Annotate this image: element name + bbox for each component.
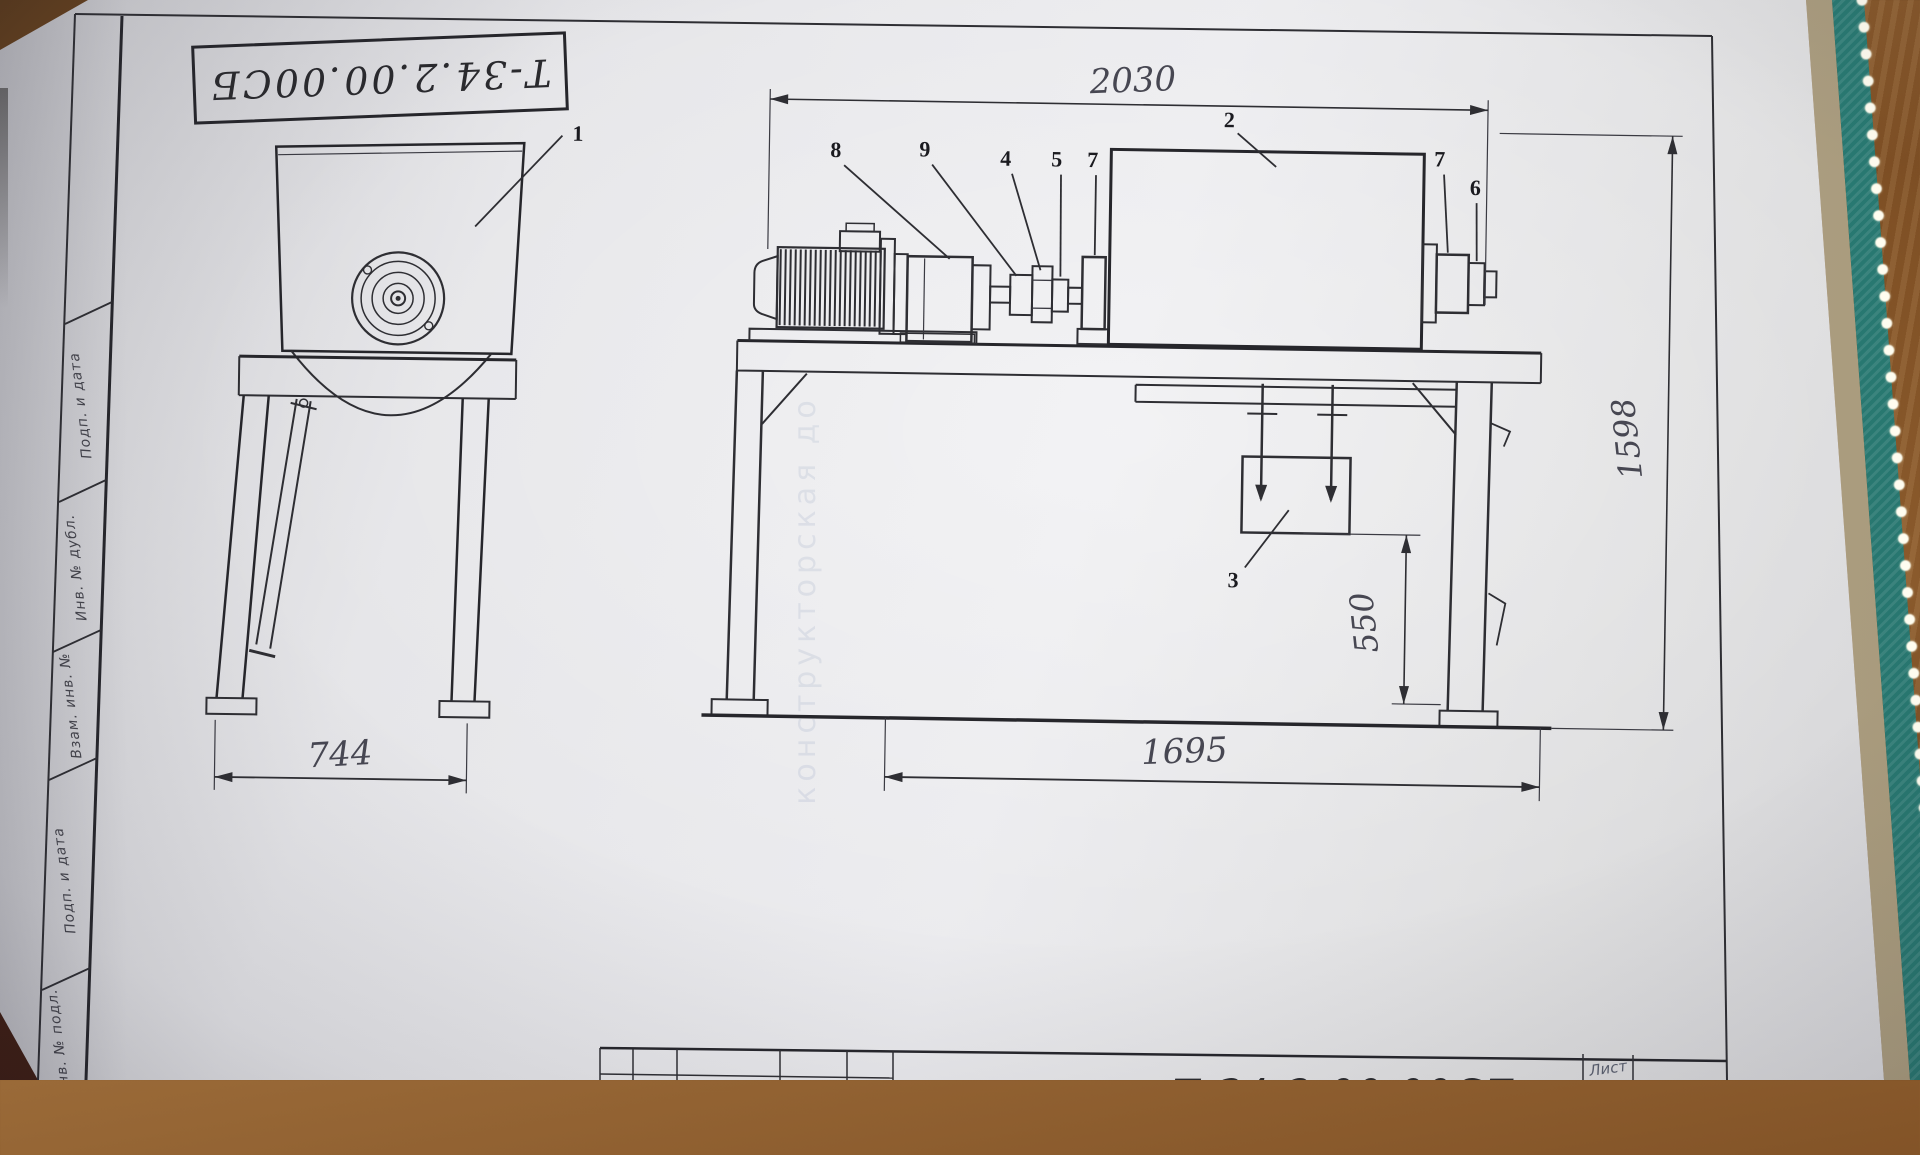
coupling-block-1 [1010, 275, 1033, 315]
bench-right-leg [1448, 382, 1492, 712]
callout-8: 8 [829, 137, 952, 259]
callout-7b-text: 7 [1434, 146, 1445, 171]
drum-body [1108, 149, 1424, 349]
under-bench-rails [1135, 385, 1456, 407]
callout-2: 2 [1223, 107, 1277, 167]
leg-gussets [762, 373, 1457, 435]
drive-train [879, 239, 1110, 346]
dimension-1695: 1695 [884, 718, 1540, 801]
right-foot [439, 701, 489, 718]
output-flange [972, 265, 991, 329]
callout-3-text: 3 [1227, 567, 1238, 592]
electric-motor [754, 222, 886, 329]
drawing-sheet-svg: конструкторская до Подп. и дата Инв. № д… [0, 0, 1920, 1080]
callout-2-text: 2 [1224, 107, 1235, 132]
hopper-outline [273, 140, 524, 354]
ground-line [701, 715, 1551, 728]
side-view: 2030 1598 550 1695 8 [700, 52, 1683, 803]
sidebar-label-podp-data-2: Подп. и дата [51, 826, 80, 935]
dimension-550: 550 [1301, 533, 1444, 704]
callout-5-text: 5 [1051, 146, 1062, 171]
sidebar-label-inv-dubl: Инв. № дубл. [62, 513, 91, 622]
dim-1598-text: 1598 [1604, 396, 1650, 481]
bottom-stamp-code: Т-34.2.00.00СБ [1172, 1072, 1516, 1080]
motor-end-cap [754, 256, 778, 319]
callout-7a-text: 7 [1087, 147, 1098, 172]
dim-2030-text: 2030 [1088, 59, 1177, 102]
callout-5: 5 [1049, 146, 1062, 276]
photo-of-engineering-drawing: { "drawing": { "code_stamp_top": "Т-34.2… [0, 0, 1920, 1080]
callout-4: 4 [999, 146, 1043, 271]
bottom-title-block: Т-34.2.00.00СБ Лист [600, 1048, 1727, 1080]
dim-1695-text: 1695 [1140, 730, 1228, 773]
stand-legs [206, 395, 493, 718]
top-stamp: Т-34.2.00.00СБ [193, 33, 568, 123]
callout-4-text: 4 [1000, 146, 1011, 171]
bench-frame [701, 328, 1557, 728]
end-bearing-cap [1468, 263, 1485, 305]
motor-cooling-fins [780, 249, 881, 327]
coupling-plate [879, 239, 894, 334]
callout-9-text: 9 [919, 136, 930, 161]
watermark-text: конструкторская до [788, 395, 823, 805]
rod-anchor-2 [1325, 486, 1337, 503]
coupling-block-3 [1052, 279, 1069, 311]
bearing-block [1082, 257, 1106, 329]
discharge-assembly [1133, 382, 1456, 536]
bench-left-foot [711, 699, 767, 716]
stand-band [239, 356, 517, 399]
drawing-frame [38, 14, 1727, 1080]
discharge-box [1241, 456, 1350, 534]
front-view: 744 1 [205, 116, 583, 795]
callout-7a: 7 [1086, 147, 1099, 255]
bench-left-leg [727, 370, 763, 699]
sidebar-label-vzam-inv: Взам. инв. № [57, 651, 86, 759]
leg-side-brackets [1488, 423, 1510, 645]
dimension-744: 744 [214, 720, 467, 794]
coupling-block-2 [1032, 266, 1053, 322]
shaft-1 [990, 286, 1010, 302]
side-chute-handle [249, 398, 317, 657]
bench-right-foot [1439, 711, 1497, 728]
hopper-rim-line [278, 148, 522, 158]
end-bearing-housing [1436, 254, 1469, 312]
dim-550-text: 550 [1342, 590, 1386, 655]
bearing-pedestal [1077, 329, 1108, 344]
shaft-2 [1068, 288, 1082, 304]
dim-744-text: 744 [306, 733, 373, 777]
gearbox [906, 256, 972, 342]
sidebar-label-inv-podl: Инв. № подл. [44, 988, 73, 1080]
frame-right-line [1712, 36, 1727, 1080]
callout-1: 1 [475, 119, 583, 227]
callout-7b: 7 [1433, 146, 1450, 252]
rod-anchor-1 [1255, 485, 1267, 502]
callout-3: 3 [1227, 509, 1288, 593]
flange-circles [351, 252, 444, 345]
sidebar-label-podp-data-1: Подп. и дата [67, 351, 96, 460]
callout-1-text: 1 [572, 121, 583, 146]
callout-6-text: 6 [1470, 175, 1481, 200]
hanger-rods [1261, 384, 1333, 500]
dimension-1598: 1598 [1490, 133, 1682, 730]
left-foot [206, 698, 256, 715]
top-stamp-code: Т-34.2.00.00СБ [208, 50, 552, 107]
callout-6: 6 [1469, 175, 1481, 261]
frame-inner-left-line [86, 16, 122, 1080]
callout-8-text: 8 [830, 137, 841, 162]
frame-top-line [75, 14, 1712, 36]
